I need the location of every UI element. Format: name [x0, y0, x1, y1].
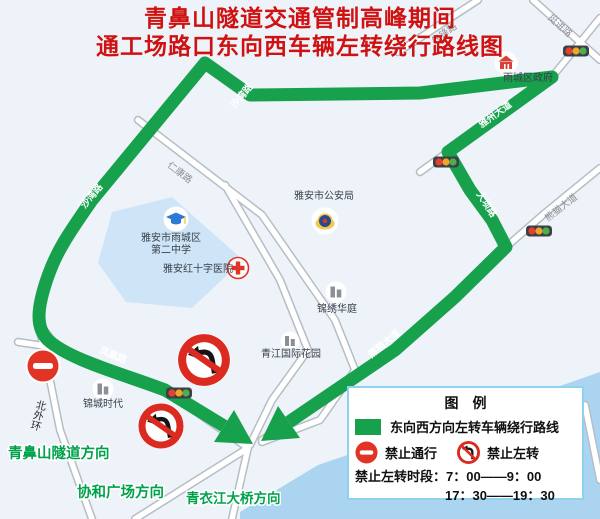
icon-bubble [281, 332, 300, 351]
building-icon [281, 332, 300, 351]
yellow-lamp [535, 227, 542, 234]
green-lamp [182, 389, 189, 396]
yellow-lamp [175, 389, 182, 396]
route-color-swatch [355, 419, 381, 435]
legend-route-label: 东向西方向左转车辆绕行路线 [390, 417, 559, 436]
legend-time-line1: 禁止左转时段：7：00——9：00 [355, 469, 576, 485]
legend-panel: 图 例 东向西方向左转车辆绕行路线 禁止通行 禁止左转 禁止左转时段：7：00—… [347, 386, 584, 500]
gov-body [500, 62, 512, 69]
building-tower [104, 387, 109, 395]
red-lamp [168, 389, 175, 396]
no-left-turn-icon [457, 441, 480, 464]
poi-label-qingjiang-garden: 青江国际花园 [261, 347, 321, 360]
traffic-light-icon [166, 388, 192, 399]
poi-label-hospital: 雅安红十字医院 [163, 262, 233, 275]
poi-label-jinxiu: 锦绣华庭 [317, 302, 357, 315]
building-tower [98, 384, 103, 395]
direction-label-tunnel: 青鼻山隧道方向 [8, 444, 110, 462]
building-tower [331, 287, 336, 298]
traffic-detour-map: 先锋路 挺进路 仁康路 熊猫大道 雅州大道 大坝路 熊猫大道 沙湾路 沙湾路 凤… [0, 0, 600, 519]
traffic-light-icon [563, 46, 589, 57]
no-entry-bar [360, 450, 373, 454]
government-icon [495, 52, 518, 75]
direction-label-bridge: 青衣江大桥方向 [186, 490, 281, 506]
legend-no-left-label: 禁止左转 [487, 443, 539, 462]
poi-label-school-line2: 第二中学 [151, 243, 191, 256]
poi-label-police: 雅安市公安局 [294, 189, 354, 202]
no-entry-icon [355, 441, 378, 464]
building-icon [93, 379, 114, 400]
cross-bar-v [236, 262, 240, 275]
red-lamp [435, 158, 442, 165]
green-lamp [579, 47, 586, 54]
direction-label-plaza: 协和广场方向 [77, 483, 164, 501]
gov-door [508, 64, 510, 69]
yellow-lamp [572, 47, 579, 54]
legend-time-line2: 17：30——19：30 [355, 485, 576, 504]
poi-label-school-line1: 雅安市雨城区 [141, 231, 201, 244]
building-tower [291, 339, 295, 346]
no-entry-bar [33, 363, 53, 369]
icon-bubble [326, 282, 347, 303]
legend-title: 图 例 [355, 393, 576, 413]
mortarboard-base [171, 219, 181, 225]
yellow-lamp [442, 158, 449, 165]
building-icon [326, 282, 347, 303]
poi-label-jincheng: 锦城时代 [83, 397, 123, 410]
school-icon [164, 207, 189, 232]
building-tower [337, 290, 342, 298]
no-entry-sign [26, 349, 61, 384]
badge-star [323, 219, 327, 223]
green-lamp [542, 227, 549, 234]
traffic-light-icon [526, 226, 552, 237]
gov-door [504, 64, 506, 69]
red-lamp [528, 227, 535, 234]
legend-row-signs: 禁止通行 禁止左转 [355, 441, 576, 464]
green-lamp [449, 158, 456, 165]
traffic-light-icon [433, 157, 459, 168]
police-badge-icon [312, 208, 339, 235]
legend-no-entry-label: 禁止通行 [385, 443, 437, 462]
building-tower [285, 336, 289, 346]
poi-label-district-gov: 雨城区政府 [503, 71, 553, 84]
red-lamp [565, 47, 572, 54]
legend-row-route: 东向西方向左转车辆绕行路线 [355, 417, 576, 436]
icon-bubble [93, 379, 114, 400]
